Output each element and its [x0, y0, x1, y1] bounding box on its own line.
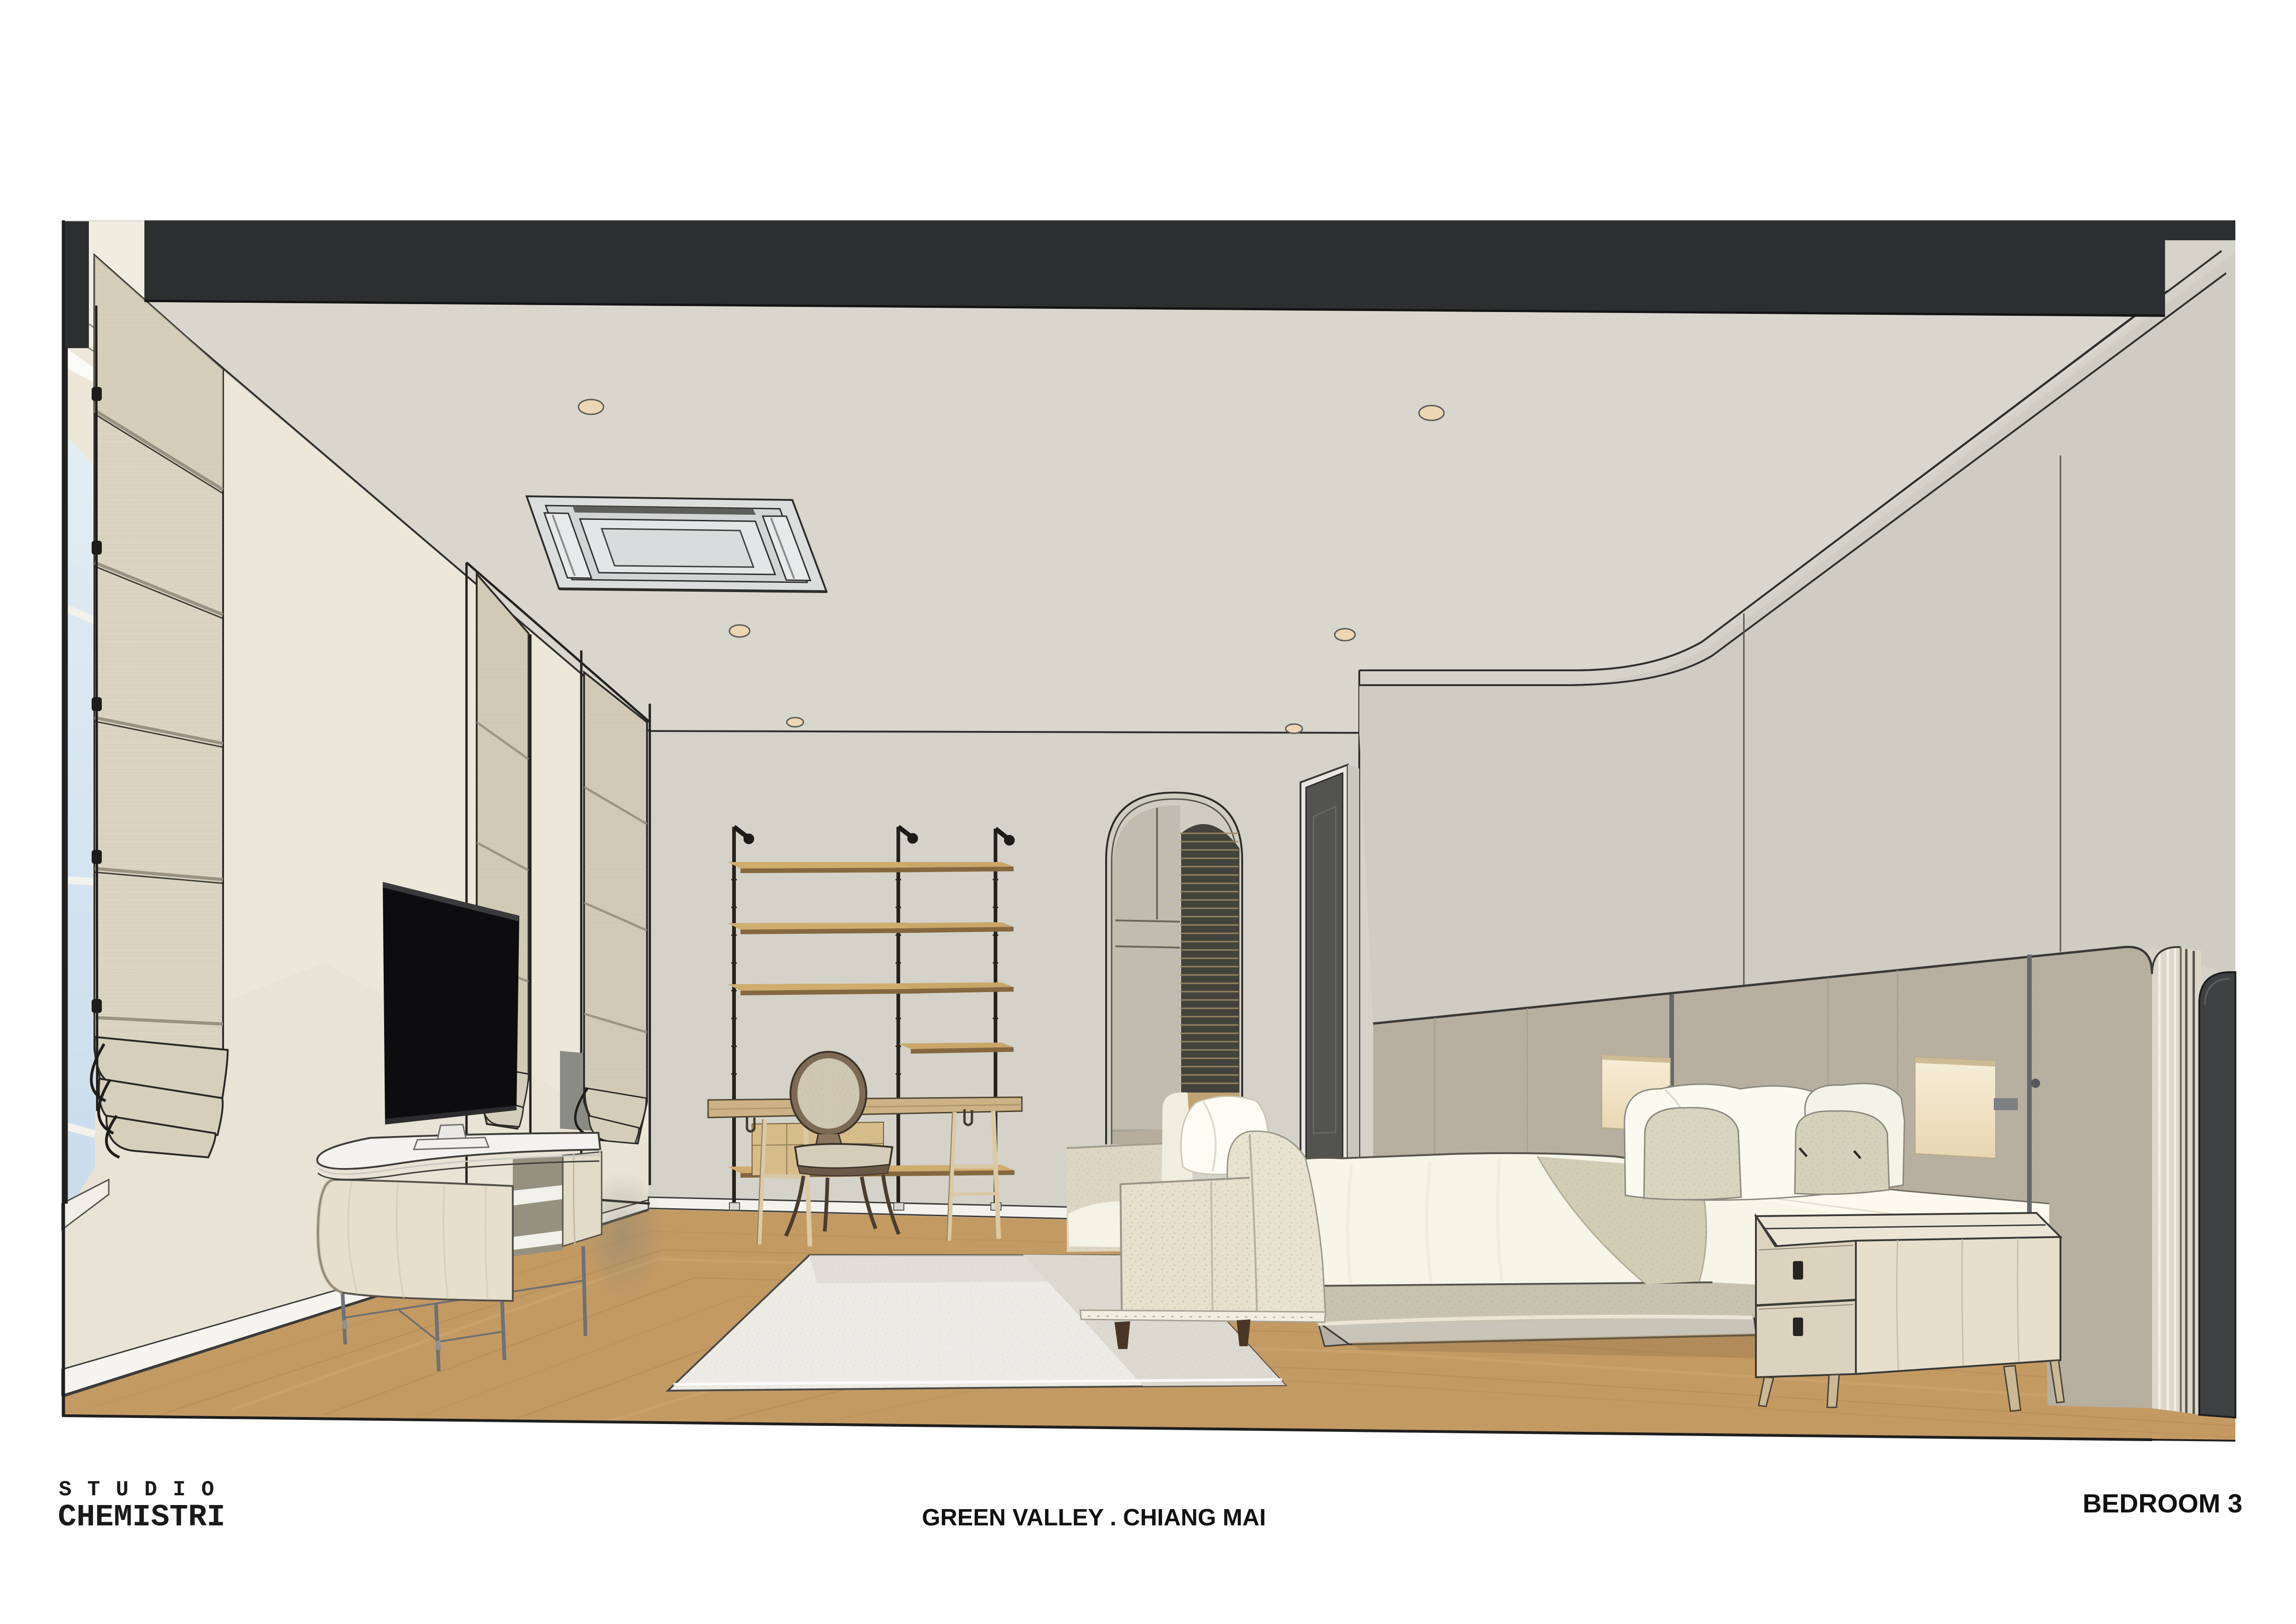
svg-text:BEDROOM 3: BEDROOM 3: [2083, 1489, 2242, 1518]
svg-text:CHEMISTRI: CHEMISTRI: [58, 1500, 225, 1535]
svg-text:GREEN VALLEY . CHIANG MAI: GREEN VALLEY . CHIANG MAI: [922, 1504, 1266, 1530]
svg-text:STUDIO: STUDIO: [59, 1478, 230, 1502]
